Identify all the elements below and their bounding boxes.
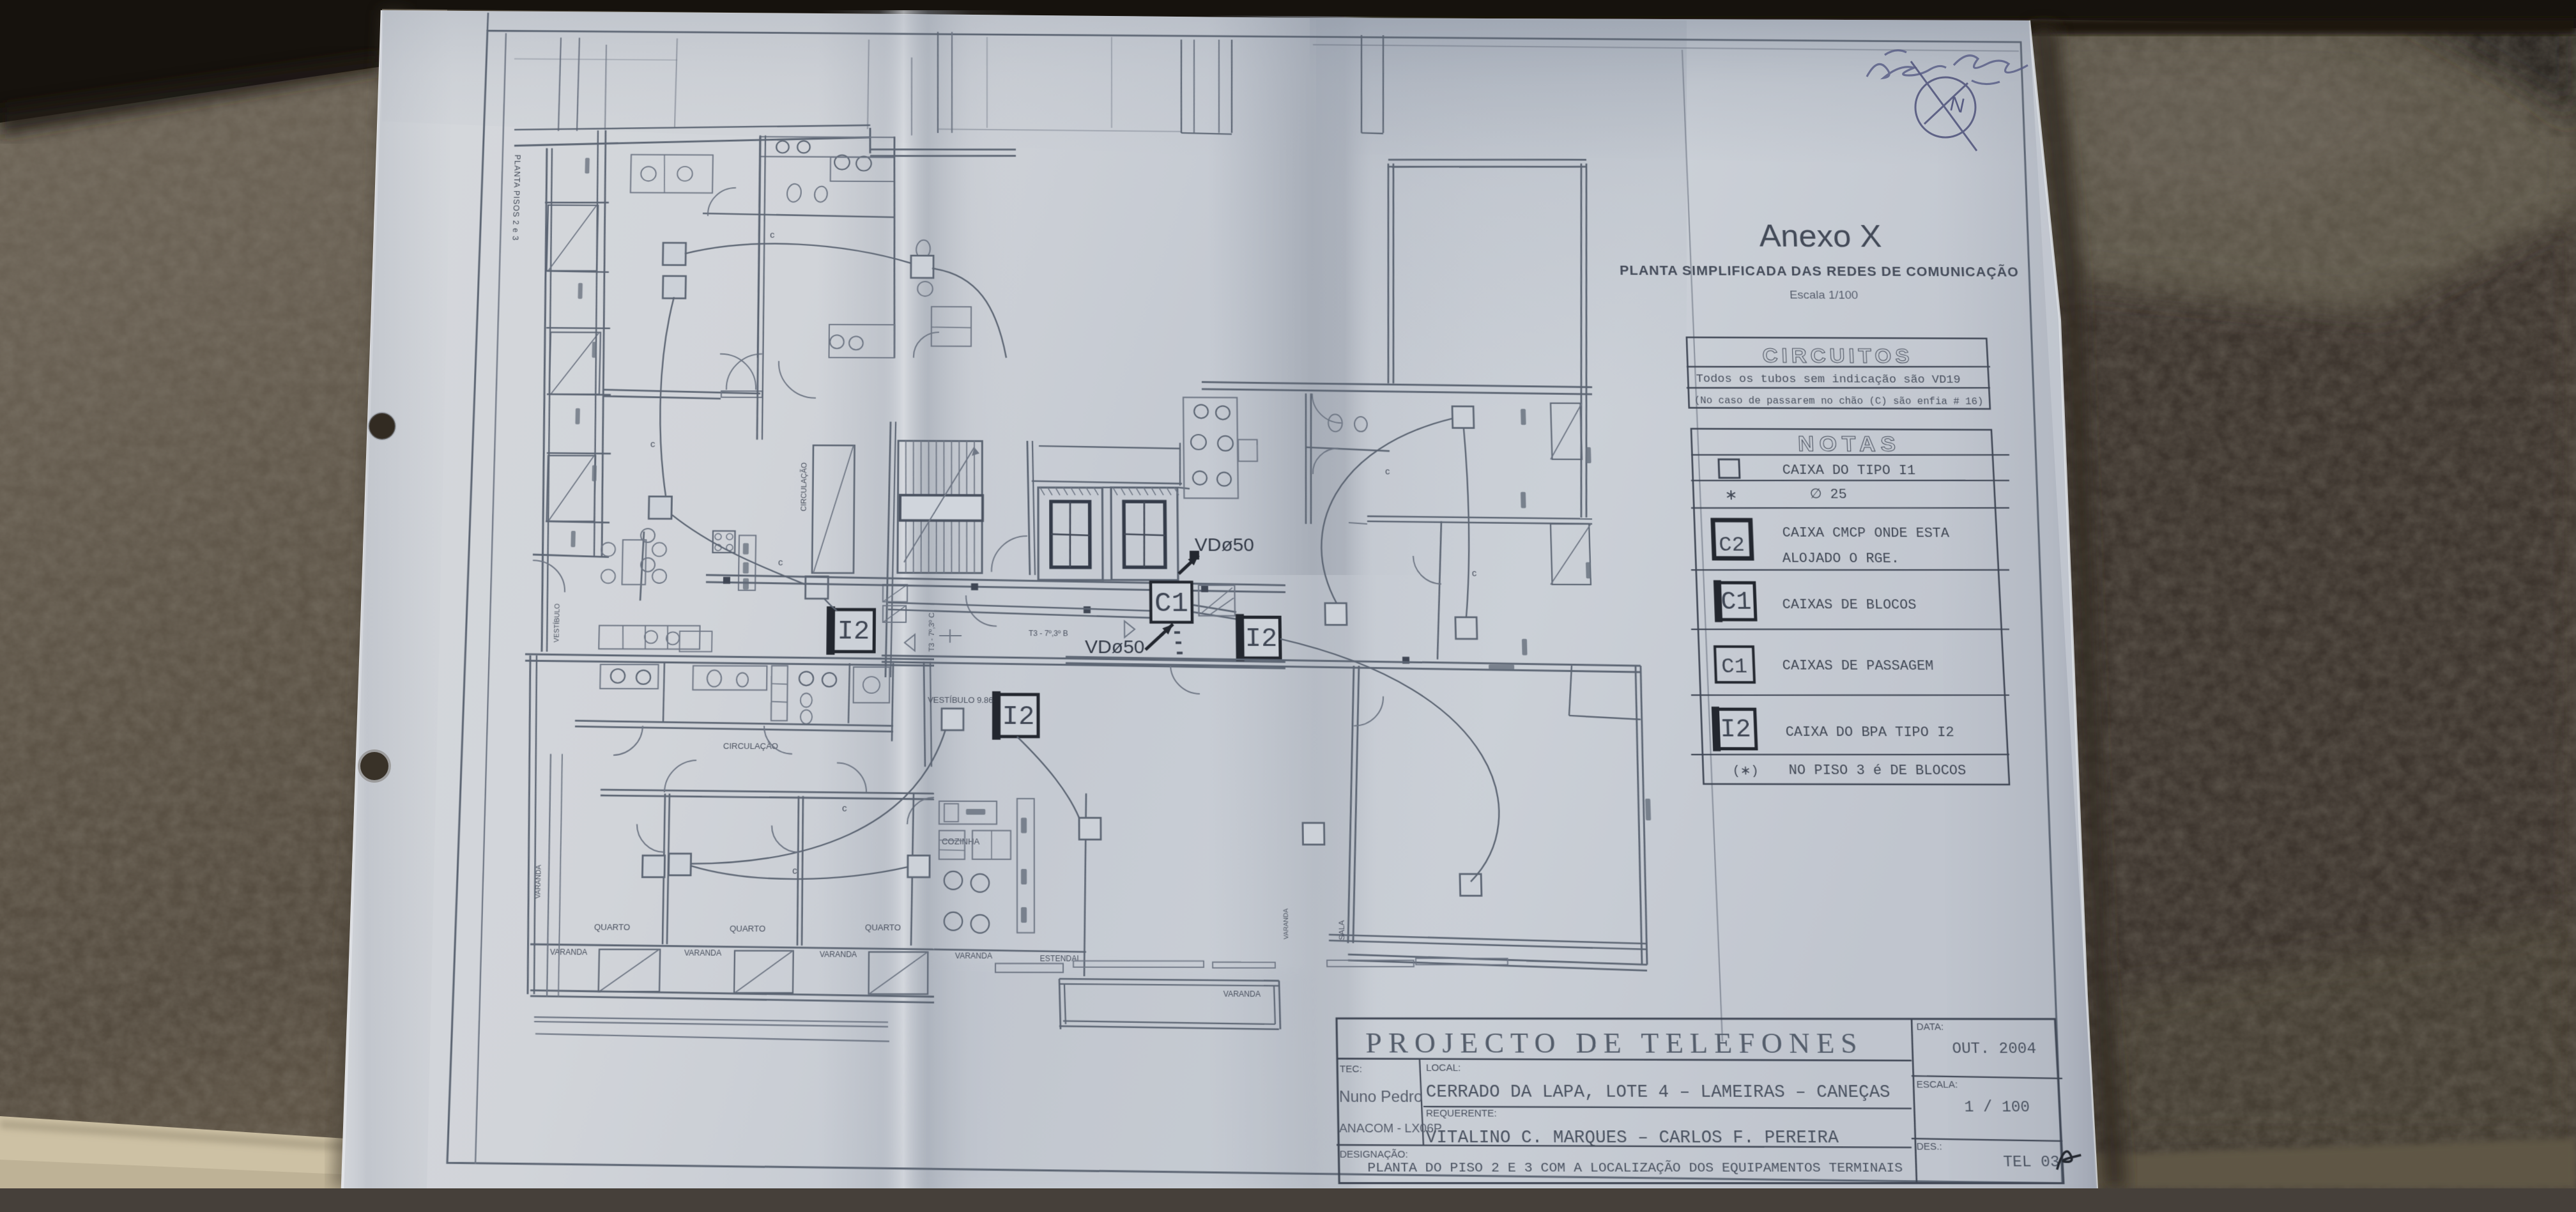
svg-text:N: N (1948, 92, 1967, 118)
